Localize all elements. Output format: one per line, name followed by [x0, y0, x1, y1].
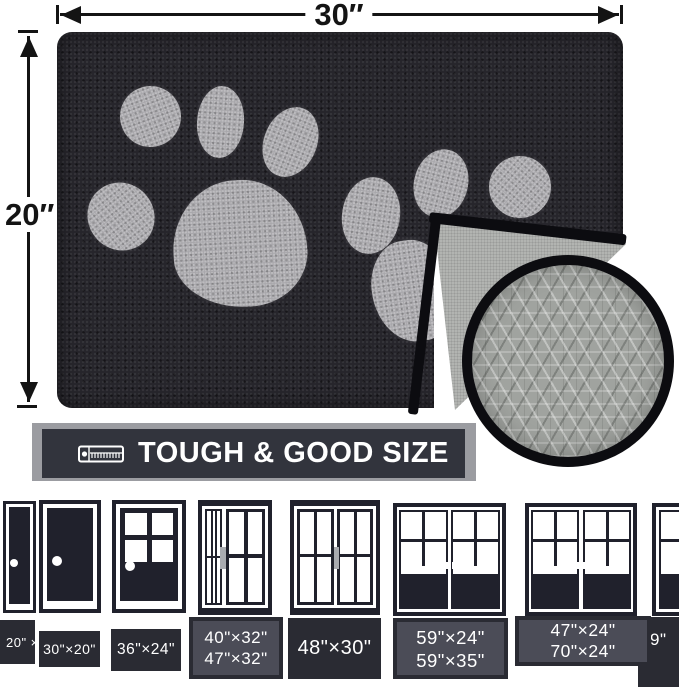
window-mullion: [661, 539, 679, 542]
door-handle: [220, 547, 226, 569]
product-size-infographic: 30″ 20″: [0, 0, 679, 689]
door-icon-3: [112, 500, 186, 613]
door-slab: [120, 508, 178, 601]
paw-toe: [406, 143, 475, 223]
window-mullion: [300, 554, 331, 557]
window-mullion: [229, 554, 262, 558]
door-icon-6: [393, 503, 506, 616]
arrowhead-left-icon: [61, 6, 81, 24]
sliding-pane: [337, 509, 373, 605]
door-icon-4: [198, 500, 272, 615]
width-label: 30″: [305, 0, 372, 32]
door-icon-1: [3, 501, 36, 613]
size-banner: TOUGH & GOOD SIZE: [42, 429, 465, 478]
arrowhead-right-icon: [598, 6, 618, 24]
dimension-tick: [17, 405, 37, 408]
sliding-pane: [226, 509, 265, 605]
door-window: [125, 513, 173, 562]
banner-title: TOUGH & GOOD SIZE: [138, 437, 449, 470]
door-knob: [443, 562, 448, 569]
arrowhead-up-icon: [20, 37, 38, 57]
door-knob: [574, 562, 579, 569]
door-icon-8: [652, 503, 679, 616]
door-size-label-5: 48"×30": [288, 618, 381, 679]
door-size-label-6: 59"×24" 59"×35": [393, 618, 508, 679]
window-mullion: [453, 539, 498, 542]
door-bottom-panel: [401, 572, 446, 607]
window-mullion: [207, 556, 220, 558]
height-label: 20″: [1, 197, 58, 232]
door-knob: [52, 556, 62, 566]
paw-toe: [195, 84, 247, 159]
door-size-label-4: 40"×32" 47"×32": [189, 617, 283, 679]
window-mullion: [401, 539, 446, 542]
window-mullion: [533, 539, 577, 542]
door-icon-7: [525, 503, 637, 616]
window-mullion: [340, 554, 370, 557]
door-leaf: [659, 510, 679, 609]
door-slab: [47, 508, 93, 601]
dimension-tick: [18, 30, 38, 33]
door-bottom-panel: [533, 572, 577, 607]
door-icon-5: [290, 500, 380, 615]
door-size-label-1: 20" ×: [0, 620, 35, 664]
door-knob: [10, 559, 18, 567]
door-knob: [583, 562, 588, 569]
door-size-label-3: 36"×24": [111, 629, 181, 671]
door-knob: [452, 562, 457, 569]
door-size-label-7: 47"×24" 70"×24": [515, 616, 651, 666]
door-knob: [125, 561, 135, 571]
door-leaf: [531, 510, 579, 609]
window-mullion: [585, 539, 629, 542]
window-mullion: [125, 535, 173, 540]
door-bottom-panel: [585, 572, 629, 607]
dimension-tick: [56, 5, 59, 24]
tape-measure-icon: [78, 445, 124, 463]
door-leaf: [451, 510, 500, 609]
door-bottom-panel: [661, 572, 679, 607]
door-handle: [334, 547, 339, 569]
paw-toe: [74, 169, 168, 264]
sliding-pane: [297, 509, 334, 605]
paw-toe: [111, 77, 189, 155]
door-slab: [9, 507, 30, 604]
door-icon-2: [39, 500, 101, 613]
paw-pad: [170, 177, 310, 311]
door-size-label-2: 30"×20": [39, 631, 100, 667]
paw-toe: [252, 99, 328, 186]
door-bottom-panel: [453, 572, 498, 607]
dimension-tick: [620, 5, 623, 24]
paw-toe: [476, 143, 563, 230]
backing-texture-zoom-circle: [462, 255, 674, 467]
arrowhead-down-icon: [20, 382, 38, 402]
door-leaf: [399, 510, 448, 609]
door-leaf: [583, 510, 631, 609]
